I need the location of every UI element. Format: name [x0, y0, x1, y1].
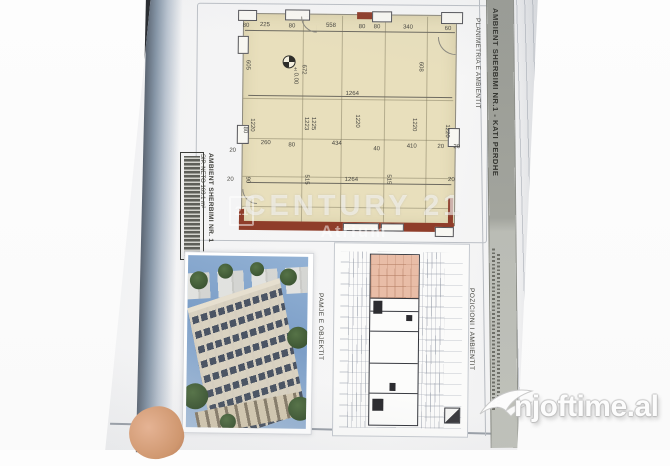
- dimension-label: 80: [374, 24, 381, 30]
- century21-watermark: CENTURY 21: [226, 190, 482, 223]
- tree: [287, 327, 308, 349]
- njoftime-watermark: njoftime.al: [478, 382, 670, 434]
- dimension-label: 608: [418, 62, 424, 72]
- window: [372, 11, 392, 22]
- wall-red-segment: [357, 12, 372, 19]
- dimension-label: 225: [260, 22, 270, 28]
- dimension-label: 80: [243, 23, 250, 29]
- footprint-wall: [370, 363, 418, 365]
- dimension-label: 1220: [411, 118, 417, 131]
- photo-of-document-scene: 8022580558808034060605672608±0.001264122…: [0, 0, 670, 450]
- key-plan-caption: POZICIONI I AMBIENTIT: [468, 288, 475, 370]
- dimension-label: ±0.00: [292, 67, 298, 85]
- dimension-label: 20: [448, 177, 455, 183]
- dimension-label: 90: [244, 177, 250, 184]
- dimension-label: 260: [261, 140, 271, 146]
- building-footprint: [368, 254, 420, 427]
- key-plan-axis-lines: [347, 251, 371, 427]
- dimension-label: 1264: [345, 177, 358, 183]
- key-plan-axis-lines: [421, 252, 445, 428]
- tree: [186, 383, 209, 409]
- stamp-area: SIP. NETO 163.1 m²: [199, 154, 205, 208]
- dimension-label: 515: [385, 174, 391, 184]
- dimension-label: 20: [229, 148, 236, 154]
- dimension-label: 60: [445, 26, 452, 32]
- dimension-label: 605: [245, 60, 251, 70]
- stamp-title: AMBIENT SHERBIMI NR. 1: [207, 153, 214, 242]
- key-plan-panel: [332, 242, 470, 437]
- dimension-label: 672: [300, 64, 306, 74]
- stair-core: [373, 301, 382, 314]
- north-arrow-icon: [444, 407, 460, 423]
- dimension-label: 80: [289, 23, 296, 29]
- tree: [220, 414, 236, 429]
- building-photo-caption: PAMJE E OBJEKTIT: [317, 293, 324, 360]
- building-photo-panel: [182, 251, 315, 435]
- dimension-label: 20: [227, 177, 234, 183]
- window: [238, 10, 257, 21]
- njoftime-watermark-text: njoftime.al: [514, 390, 659, 424]
- tree: [218, 264, 233, 279]
- footprint-wall: [369, 393, 417, 395]
- tree: [190, 271, 208, 289]
- highlighted-unit: [370, 255, 418, 300]
- dimension-label: 1225: [310, 117, 316, 130]
- dimension-label: 1264: [346, 91, 359, 97]
- dimension-label: 20: [453, 144, 460, 150]
- tree: [280, 268, 297, 285]
- dimension-label: 1220: [249, 118, 255, 131]
- tree: [288, 397, 308, 421]
- dimension-label: 1220: [444, 124, 450, 137]
- dimension-label: 558: [326, 23, 336, 29]
- footprint-wall: [370, 331, 418, 333]
- shaft: [406, 315, 412, 321]
- dimension-label: 80: [242, 127, 248, 134]
- century21-office-watermark: Atrium: [226, 222, 482, 242]
- dimension-label: 434: [332, 141, 342, 147]
- dimension-label: 1223: [303, 117, 309, 130]
- window: [238, 36, 249, 54]
- sheet-subtitle: PLANIMETRIA E AMBIENTIT: [474, 18, 481, 109]
- window: [441, 12, 463, 24]
- dimension-label: 515: [303, 175, 309, 185]
- dimension-label: 410: [407, 144, 417, 150]
- building-photo: [186, 255, 308, 429]
- dimension-label: 340: [403, 25, 413, 31]
- stair-core: [372, 399, 383, 411]
- dimension-label: 1220: [354, 114, 360, 127]
- sheet-title: AMBIENT SHERBIMI NR.1 - KATI PERDHE: [491, 8, 500, 176]
- dimension-label: 80: [288, 142, 295, 148]
- dimension-label: 20: [437, 144, 444, 150]
- dimension-label: 80: [359, 24, 366, 30]
- dimension-label: 40: [373, 146, 380, 152]
- shaft: [389, 383, 395, 391]
